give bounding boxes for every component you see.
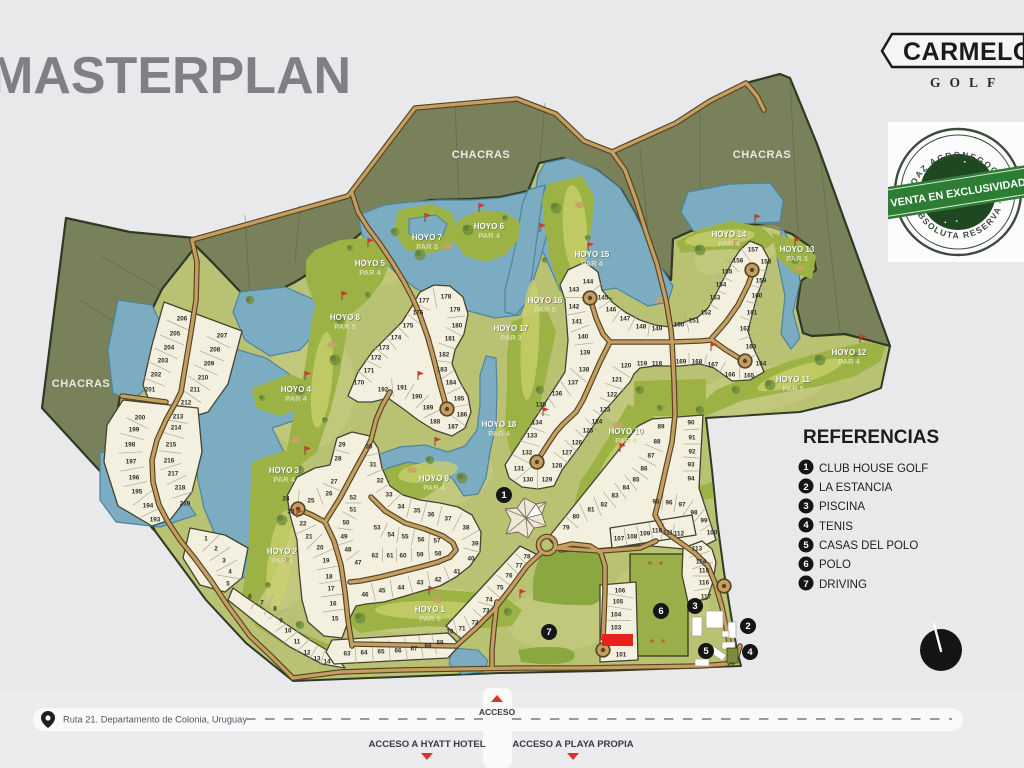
svg-text:90: 90 bbox=[687, 419, 695, 426]
svg-text:PAR 5: PAR 5 bbox=[419, 614, 441, 623]
svg-text:PAR 4: PAR 4 bbox=[271, 556, 293, 565]
svg-text:PAR 4: PAR 4 bbox=[581, 259, 603, 268]
svg-text:70: 70 bbox=[446, 628, 454, 635]
svg-text:172: 172 bbox=[371, 354, 382, 361]
svg-text:145: 145 bbox=[598, 294, 609, 301]
svg-text:186: 186 bbox=[457, 411, 468, 418]
svg-text:108: 108 bbox=[627, 533, 638, 540]
svg-text:64: 64 bbox=[360, 649, 368, 656]
svg-text:124: 124 bbox=[592, 418, 603, 425]
svg-text:21: 21 bbox=[305, 533, 313, 540]
svg-text:15: 15 bbox=[331, 615, 339, 622]
svg-text:125: 125 bbox=[583, 427, 594, 434]
svg-text:22: 22 bbox=[299, 520, 307, 527]
svg-text:173: 173 bbox=[379, 344, 390, 351]
svg-text:MASTERPLAN: MASTERPLAN bbox=[0, 47, 351, 105]
svg-text:52: 52 bbox=[349, 494, 357, 501]
svg-text:96: 96 bbox=[665, 499, 673, 506]
svg-text:REFERENCIAS: REFERENCIAS bbox=[803, 427, 939, 448]
svg-text:217: 217 bbox=[168, 470, 179, 477]
svg-text:99: 99 bbox=[700, 517, 708, 524]
svg-text:179: 179 bbox=[450, 306, 461, 313]
svg-text:86: 86 bbox=[640, 465, 648, 472]
svg-text:9: 9 bbox=[279, 617, 283, 624]
svg-text:138: 138 bbox=[579, 366, 590, 373]
svg-text:TENIS: TENIS bbox=[819, 521, 853, 533]
svg-text:95: 95 bbox=[652, 498, 660, 505]
svg-text:133: 133 bbox=[527, 432, 538, 439]
svg-text:168: 168 bbox=[692, 358, 703, 365]
svg-text:120: 120 bbox=[621, 362, 632, 369]
svg-text:189: 189 bbox=[423, 404, 434, 411]
svg-text:14: 14 bbox=[323, 658, 331, 665]
svg-text:18: 18 bbox=[325, 573, 333, 580]
svg-text:161: 161 bbox=[747, 309, 758, 316]
svg-text:163: 163 bbox=[746, 343, 757, 350]
svg-text:87: 87 bbox=[647, 452, 655, 459]
svg-text:113: 113 bbox=[692, 545, 703, 552]
svg-text:205: 205 bbox=[170, 330, 181, 337]
svg-text:197: 197 bbox=[126, 458, 137, 465]
svg-text:45: 45 bbox=[378, 587, 386, 594]
svg-text:131: 131 bbox=[514, 465, 525, 472]
svg-text:146: 146 bbox=[606, 306, 617, 313]
svg-text:PAR 4: PAR 4 bbox=[423, 483, 445, 492]
svg-text:50: 50 bbox=[342, 519, 350, 526]
svg-text:HOYO 7: HOYO 7 bbox=[412, 233, 443, 242]
svg-text:73: 73 bbox=[482, 607, 490, 614]
svg-text:51: 51 bbox=[349, 506, 357, 513]
svg-text:80: 80 bbox=[572, 513, 580, 520]
svg-text:19: 19 bbox=[322, 557, 330, 564]
svg-text:136: 136 bbox=[552, 390, 563, 397]
svg-text:6: 6 bbox=[803, 559, 808, 570]
svg-text:3: 3 bbox=[692, 601, 697, 612]
svg-text:5: 5 bbox=[226, 580, 230, 587]
svg-text:42: 42 bbox=[434, 576, 442, 583]
svg-text:88: 88 bbox=[653, 438, 661, 445]
svg-text:162: 162 bbox=[740, 325, 751, 332]
svg-text:HOYO 15: HOYO 15 bbox=[575, 250, 610, 259]
svg-text:176: 176 bbox=[413, 309, 424, 316]
svg-text:206: 206 bbox=[177, 315, 188, 322]
svg-text:43: 43 bbox=[416, 579, 424, 586]
svg-text:HOYO 10: HOYO 10 bbox=[609, 427, 644, 436]
svg-text:27: 27 bbox=[330, 478, 338, 485]
svg-text:PAR 4: PAR 4 bbox=[838, 357, 860, 366]
svg-text:83: 83 bbox=[611, 492, 619, 499]
svg-text:190: 190 bbox=[412, 393, 423, 400]
svg-text:194: 194 bbox=[143, 502, 154, 509]
svg-text:63: 63 bbox=[343, 650, 351, 657]
svg-text:3: 3 bbox=[222, 557, 226, 564]
svg-text:HOYO 12: HOYO 12 bbox=[832, 348, 867, 357]
svg-text:216: 216 bbox=[164, 457, 175, 464]
svg-text:31: 31 bbox=[369, 461, 377, 468]
svg-text:183: 183 bbox=[437, 366, 448, 373]
svg-text:112: 112 bbox=[674, 530, 685, 537]
svg-text:6: 6 bbox=[658, 606, 663, 617]
svg-text:166: 166 bbox=[725, 371, 736, 378]
svg-text:211: 211 bbox=[190, 386, 201, 393]
svg-text:218: 218 bbox=[175, 484, 186, 491]
svg-text:153: 153 bbox=[710, 294, 721, 301]
svg-text:HOYO 2: HOYO 2 bbox=[267, 547, 298, 556]
svg-text:36: 36 bbox=[427, 511, 435, 518]
svg-text:165: 165 bbox=[744, 372, 755, 379]
svg-text:20: 20 bbox=[316, 544, 324, 551]
svg-text:201: 201 bbox=[145, 386, 156, 393]
svg-text:210: 210 bbox=[198, 374, 209, 381]
svg-text:57: 57 bbox=[433, 537, 441, 544]
svg-text:10: 10 bbox=[284, 627, 292, 634]
svg-text:PAR 4: PAR 4 bbox=[285, 394, 307, 403]
svg-text:103: 103 bbox=[611, 624, 622, 631]
svg-text:170: 170 bbox=[354, 379, 365, 386]
svg-text:119: 119 bbox=[637, 360, 648, 367]
svg-text:40: 40 bbox=[467, 555, 475, 562]
svg-text:35: 35 bbox=[413, 507, 421, 514]
svg-text:25: 25 bbox=[307, 497, 315, 504]
svg-text:29: 29 bbox=[338, 441, 346, 448]
svg-text:198: 198 bbox=[125, 441, 136, 448]
svg-text:HOYO 8: HOYO 8 bbox=[330, 313, 361, 322]
svg-text:61: 61 bbox=[386, 552, 394, 559]
svg-text:3: 3 bbox=[803, 501, 808, 512]
svg-text:98: 98 bbox=[690, 509, 698, 516]
svg-text:121: 121 bbox=[612, 376, 623, 383]
svg-text:HOYO 16: HOYO 16 bbox=[528, 296, 563, 305]
svg-text:144: 144 bbox=[583, 278, 594, 285]
svg-text:47: 47 bbox=[354, 559, 362, 566]
svg-text:7: 7 bbox=[260, 599, 264, 606]
svg-text:137: 137 bbox=[568, 379, 579, 386]
svg-text:ACCESO A PLAYA PROPIA: ACCESO A PLAYA PROPIA bbox=[512, 739, 633, 750]
svg-text:123: 123 bbox=[600, 406, 611, 413]
svg-text:53: 53 bbox=[373, 524, 381, 531]
svg-text:195: 195 bbox=[132, 488, 143, 495]
svg-text:174: 174 bbox=[391, 334, 402, 341]
svg-text:151: 151 bbox=[689, 317, 700, 324]
svg-text:140: 140 bbox=[578, 333, 589, 340]
svg-text:106: 106 bbox=[615, 587, 626, 594]
svg-text:59: 59 bbox=[416, 551, 424, 558]
svg-text:12: 12 bbox=[303, 649, 311, 656]
svg-text:24: 24 bbox=[282, 495, 290, 502]
svg-text:HOYO 5: HOYO 5 bbox=[355, 259, 386, 268]
svg-text:CHACRAS: CHACRAS bbox=[452, 149, 511, 161]
svg-text:148: 148 bbox=[636, 323, 647, 330]
svg-text:32: 32 bbox=[376, 477, 384, 484]
svg-text:4: 4 bbox=[747, 647, 753, 658]
svg-text:PAR 4: PAR 4 bbox=[359, 268, 381, 277]
svg-text:154: 154 bbox=[716, 281, 727, 288]
svg-text:PAR 4: PAR 4 bbox=[273, 475, 295, 484]
svg-text:67: 67 bbox=[410, 645, 418, 652]
svg-text:157: 157 bbox=[748, 246, 759, 253]
svg-text:182: 182 bbox=[439, 351, 450, 358]
svg-text:199: 199 bbox=[129, 426, 140, 433]
svg-text:212: 212 bbox=[181, 399, 192, 406]
svg-text:91: 91 bbox=[688, 434, 696, 441]
svg-text:74: 74 bbox=[485, 596, 493, 603]
svg-text:HOYO 13: HOYO 13 bbox=[780, 245, 815, 254]
svg-text:69: 69 bbox=[436, 639, 444, 646]
svg-text:155: 155 bbox=[722, 268, 733, 275]
svg-text:130: 130 bbox=[523, 476, 534, 483]
svg-text:8: 8 bbox=[273, 605, 277, 612]
svg-text:193: 193 bbox=[150, 516, 161, 523]
svg-text:204: 204 bbox=[164, 344, 175, 351]
svg-text:HOYO 11: HOYO 11 bbox=[776, 375, 811, 384]
svg-text:177: 177 bbox=[419, 297, 430, 304]
svg-text:28: 28 bbox=[334, 455, 342, 462]
svg-text:PAR 5: PAR 5 bbox=[334, 322, 356, 331]
svg-text:71: 71 bbox=[458, 625, 466, 632]
svg-text:134: 134 bbox=[532, 419, 543, 426]
svg-text:56: 56 bbox=[417, 536, 425, 543]
svg-text:CHACRAS: CHACRAS bbox=[52, 378, 111, 390]
svg-text:GOLF: GOLF bbox=[930, 75, 1004, 90]
svg-text:PAR 3: PAR 3 bbox=[416, 242, 438, 251]
svg-text:CHACRAS: CHACRAS bbox=[733, 149, 792, 161]
svg-text:141: 141 bbox=[572, 318, 583, 325]
svg-text:HOYO 3: HOYO 3 bbox=[269, 466, 300, 475]
svg-text:85: 85 bbox=[632, 476, 640, 483]
svg-text:HOYO 4: HOYO 4 bbox=[281, 385, 312, 394]
svg-text:185: 185 bbox=[454, 395, 465, 402]
svg-text:CLUB HOUSE GOLF: CLUB HOUSE GOLF bbox=[819, 463, 928, 475]
svg-text:41: 41 bbox=[453, 568, 461, 575]
svg-text:2: 2 bbox=[745, 621, 750, 632]
svg-text:135: 135 bbox=[536, 401, 547, 408]
svg-text:HOYO 1: HOYO 1 bbox=[415, 605, 446, 614]
svg-text:DRIVING: DRIVING bbox=[819, 579, 867, 591]
svg-text:PAR 5: PAR 5 bbox=[534, 305, 556, 314]
svg-text:187: 187 bbox=[448, 423, 459, 430]
svg-text:54: 54 bbox=[387, 531, 395, 538]
svg-text:219: 219 bbox=[180, 500, 191, 507]
svg-text:77: 77 bbox=[515, 562, 523, 569]
svg-text:6: 6 bbox=[248, 593, 252, 600]
svg-text:PAR 4: PAR 4 bbox=[488, 429, 510, 438]
svg-text:5: 5 bbox=[803, 540, 809, 551]
svg-text:200: 200 bbox=[135, 414, 146, 421]
svg-text:ACCESO A HYATT HOTEL: ACCESO A HYATT HOTEL bbox=[369, 739, 486, 750]
svg-text:208: 208 bbox=[210, 346, 221, 353]
svg-text:214: 214 bbox=[171, 424, 182, 431]
svg-text:175: 175 bbox=[403, 322, 414, 329]
svg-text:101: 101 bbox=[616, 651, 627, 658]
svg-text:100: 100 bbox=[707, 529, 718, 536]
svg-text:37: 37 bbox=[444, 515, 452, 522]
svg-text:2: 2 bbox=[803, 482, 808, 493]
svg-text:156: 156 bbox=[733, 257, 744, 264]
svg-text:HOYO 9: HOYO 9 bbox=[419, 474, 450, 483]
svg-text:178: 178 bbox=[441, 293, 452, 300]
svg-text:49: 49 bbox=[340, 533, 348, 540]
svg-text:LA ESTANCIA: LA ESTANCIA bbox=[819, 482, 893, 494]
svg-text:Ruta 21. Departamento de Colon: Ruta 21. Departamento de Colonia, Urugua… bbox=[63, 715, 247, 725]
svg-text:107: 107 bbox=[614, 535, 625, 542]
svg-text:PAR 3: PAR 3 bbox=[500, 333, 522, 342]
svg-text:11: 11 bbox=[294, 638, 301, 645]
svg-text:68: 68 bbox=[424, 642, 432, 649]
svg-text:143: 143 bbox=[569, 286, 580, 293]
svg-text:34: 34 bbox=[397, 503, 405, 510]
svg-text:167: 167 bbox=[708, 361, 719, 368]
svg-text:196: 196 bbox=[129, 474, 140, 481]
svg-text:PAR 3: PAR 3 bbox=[786, 254, 808, 263]
svg-text:104: 104 bbox=[611, 611, 622, 618]
svg-text:105: 105 bbox=[613, 598, 624, 605]
svg-text:94: 94 bbox=[687, 475, 695, 482]
svg-text:HOYO 14: HOYO 14 bbox=[712, 230, 747, 239]
svg-text:POLO: POLO bbox=[819, 559, 851, 571]
svg-text:39: 39 bbox=[471, 540, 479, 547]
svg-text:72: 72 bbox=[471, 619, 479, 626]
svg-text:HOYO 17: HOYO 17 bbox=[494, 324, 529, 333]
svg-text:128: 128 bbox=[552, 462, 563, 469]
svg-text:207: 207 bbox=[217, 332, 228, 339]
svg-text:115: 115 bbox=[699, 567, 710, 574]
svg-text:2: 2 bbox=[214, 545, 218, 552]
svg-text:38: 38 bbox=[462, 524, 470, 531]
svg-text:191: 191 bbox=[397, 384, 408, 391]
svg-text:92: 92 bbox=[688, 448, 696, 455]
svg-text:118: 118 bbox=[652, 360, 663, 367]
svg-text:109: 109 bbox=[640, 530, 651, 537]
svg-text:PAR 4: PAR 4 bbox=[615, 436, 637, 445]
svg-text:66: 66 bbox=[394, 647, 402, 654]
svg-text:126: 126 bbox=[572, 439, 583, 446]
svg-text:55: 55 bbox=[401, 533, 409, 540]
svg-text:132: 132 bbox=[522, 449, 533, 456]
svg-text:180: 180 bbox=[452, 322, 463, 329]
svg-text:111: 111 bbox=[663, 529, 673, 536]
svg-text:PAR 5: PAR 5 bbox=[782, 384, 804, 393]
svg-text:150: 150 bbox=[674, 321, 685, 328]
svg-text:46: 46 bbox=[361, 591, 369, 598]
svg-text:149: 149 bbox=[652, 325, 663, 332]
svg-text:60: 60 bbox=[399, 552, 407, 559]
svg-text:181: 181 bbox=[445, 335, 456, 342]
svg-text:26: 26 bbox=[325, 490, 333, 497]
svg-text:127: 127 bbox=[562, 449, 573, 456]
svg-text:CASAS DEL POLO: CASAS DEL POLO bbox=[819, 540, 918, 552]
svg-text:215: 215 bbox=[166, 441, 177, 448]
svg-text:ACCESO: ACCESO bbox=[479, 707, 516, 717]
svg-text:84: 84 bbox=[622, 484, 630, 491]
svg-text:89: 89 bbox=[657, 423, 665, 430]
svg-text:PAR 4: PAR 4 bbox=[718, 239, 740, 248]
svg-text:58: 58 bbox=[434, 550, 442, 557]
svg-text:78: 78 bbox=[523, 553, 531, 560]
svg-text:48: 48 bbox=[344, 546, 352, 553]
svg-text:23: 23 bbox=[287, 508, 295, 515]
svg-text:1: 1 bbox=[204, 535, 208, 542]
svg-text:44: 44 bbox=[397, 584, 405, 591]
svg-text:192: 192 bbox=[378, 386, 389, 393]
svg-text:81: 81 bbox=[587, 506, 595, 513]
svg-text:4: 4 bbox=[803, 520, 809, 531]
svg-text:33: 33 bbox=[385, 491, 393, 498]
svg-text:82: 82 bbox=[600, 501, 608, 508]
svg-text:116: 116 bbox=[699, 579, 710, 586]
svg-text:HOYO 18: HOYO 18 bbox=[482, 420, 517, 429]
svg-text:1: 1 bbox=[803, 462, 809, 473]
svg-text:202: 202 bbox=[151, 371, 162, 378]
svg-text:30: 30 bbox=[365, 443, 373, 450]
svg-text:209: 209 bbox=[204, 360, 215, 367]
svg-text:169: 169 bbox=[676, 358, 687, 365]
svg-text:5: 5 bbox=[703, 646, 709, 657]
svg-text:117: 117 bbox=[701, 593, 712, 600]
svg-text:142: 142 bbox=[569, 303, 580, 310]
svg-text:CARMELO: CARMELO bbox=[903, 38, 1024, 66]
svg-text:139: 139 bbox=[580, 349, 591, 356]
svg-text:129: 129 bbox=[542, 476, 553, 483]
svg-text:152: 152 bbox=[701, 309, 712, 316]
svg-text:62: 62 bbox=[371, 552, 379, 559]
svg-text:97: 97 bbox=[678, 501, 686, 508]
svg-text:158: 158 bbox=[761, 258, 772, 265]
svg-text:7: 7 bbox=[546, 627, 551, 638]
svg-text:PAR 4: PAR 4 bbox=[478, 231, 500, 240]
svg-text:93: 93 bbox=[687, 461, 695, 468]
svg-text:PISCINA: PISCINA bbox=[819, 501, 865, 513]
svg-text:7: 7 bbox=[803, 579, 808, 590]
svg-text:160: 160 bbox=[752, 292, 763, 299]
svg-text:75: 75 bbox=[496, 584, 504, 591]
svg-text:147: 147 bbox=[620, 315, 631, 322]
svg-text:17: 17 bbox=[327, 585, 335, 592]
svg-text:76: 76 bbox=[505, 572, 513, 579]
svg-text:203: 203 bbox=[158, 357, 169, 364]
svg-text:122: 122 bbox=[607, 391, 618, 398]
svg-text:HOYO 6: HOYO 6 bbox=[474, 222, 505, 231]
svg-text:4: 4 bbox=[228, 568, 232, 575]
svg-text:114: 114 bbox=[696, 558, 707, 565]
svg-text:188: 188 bbox=[430, 418, 441, 425]
svg-text:79: 79 bbox=[562, 524, 570, 531]
svg-text:65: 65 bbox=[377, 648, 385, 655]
svg-text:13: 13 bbox=[313, 655, 321, 662]
svg-text:1: 1 bbox=[501, 490, 507, 501]
svg-text:16: 16 bbox=[329, 600, 337, 607]
svg-text:164: 164 bbox=[756, 360, 767, 367]
svg-text:184: 184 bbox=[446, 379, 457, 386]
svg-text:171: 171 bbox=[364, 367, 375, 374]
svg-text:159: 159 bbox=[756, 277, 767, 284]
svg-text:213: 213 bbox=[173, 413, 184, 420]
svg-text:110: 110 bbox=[652, 527, 663, 534]
